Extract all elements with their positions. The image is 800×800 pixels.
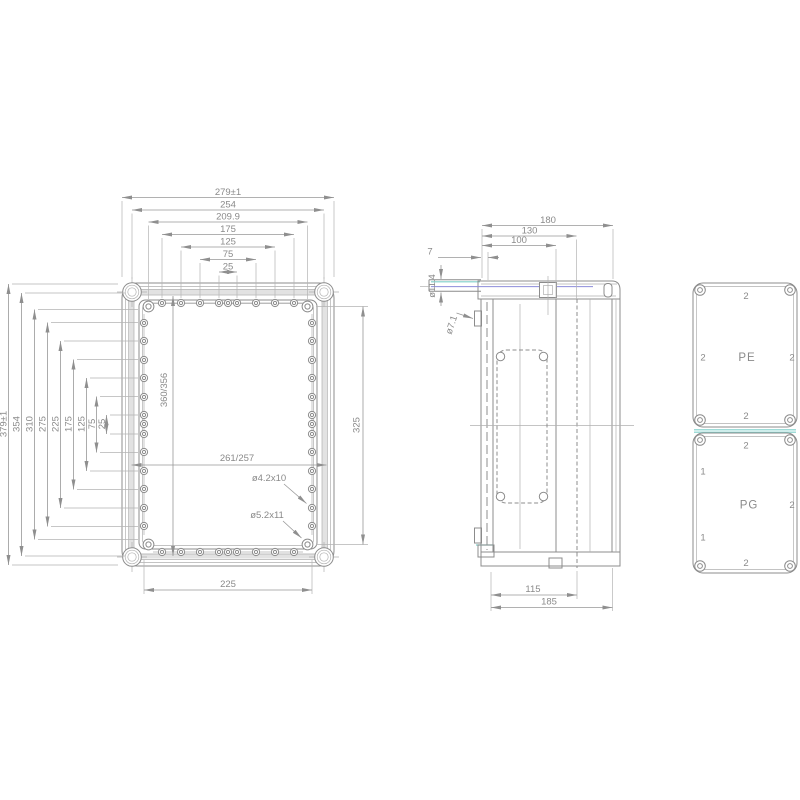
dim-overall-width: 279±1 [215,187,241,198]
dim-lid-screw-spacing-x: 209.9 [216,212,240,223]
panel-separator [694,430,796,432]
note-hole-diameter-small: ø4.2x10 [252,473,286,484]
pe-panel-title: PE [738,352,755,364]
pg-panel-title: PG [740,500,759,512]
pg-count-lower-left: 1 [700,533,705,544]
corner-screw [123,283,142,302]
pe-count-top: 2 [743,291,748,302]
dim-lid-screw-spacing-y: 310 [25,416,36,432]
dim-corner-screw-spacing-y: 354 [12,416,23,432]
dim-overall-height: 379±1 [0,411,10,437]
pe-panel: 2 2 PE 2 2 [693,283,797,427]
pe-count-left: 2 [700,353,705,364]
dim-bottom-115: 115 [525,584,540,595]
dim-hole-span-y-25: 25 [97,419,108,430]
front-view-top-dimensions: 279±1 254 209.9 175 125 75 25 [122,187,334,299]
mounting-window [497,350,547,503]
panel-screw [785,435,796,446]
corner-screw [315,283,334,302]
pg-count-right: 2 [789,500,794,511]
front-view: 279±1 254 209.9 175 125 75 25 379±1 354 … [0,187,368,594]
lid-screw-boss-bottom [475,528,482,543]
dim-hole-span-75: 75 [223,249,234,260]
dim-hole-span-y-275: 275 [38,416,49,432]
lid-screw-hole [143,301,154,312]
dim-depth-180: 180 [540,215,556,226]
dim-inner-height: 360/356 [159,373,170,407]
dim-hole-span-y-175: 175 [64,416,75,432]
front-view-body [117,277,339,572]
lid-screw-hole [143,539,154,550]
dim-corner-screw-spacing-x: 254 [220,200,236,211]
corner-screw [315,548,334,567]
mounting-holes [140,299,315,555]
enclosure-drawing: 279±1 254 209.9 175 125 75 25 379±1 354 … [0,0,800,800]
dim-hole-span-y-225: 225 [51,416,62,432]
pg-count-upper-left: 1 [700,467,705,478]
dim-inner-width: 261/257 [220,453,254,464]
dim-depth-100: 100 [511,235,527,246]
dim-lid-hole-diameter: ø7.1 [444,314,460,335]
pe-count-bottom: 2 [743,411,748,422]
dim-hole-span-25: 25 [223,262,234,273]
front-view-left-dimensions: 379±1 354 310 275 225 175 125 75 25 [0,284,138,565]
side-view: 180 130 100 7 ø11.4 ø7.1 115 185 [420,215,634,611]
dim-hole-span-y-125: 125 [77,416,88,432]
dim-hole-span-125: 125 [220,237,236,248]
lid-screw-hole [302,301,313,312]
lid-screw-hole [302,539,313,550]
dim-lid-screw-span-right: 325 [352,417,363,433]
lid-screw-boss-top [475,311,482,326]
panel-screw [785,415,796,426]
corner-screw [123,548,142,567]
panel-screw [785,561,796,572]
dim-bottom-185: 185 [541,597,557,608]
panel-screw [695,435,706,446]
dim-hole-span-175: 175 [220,224,236,235]
pg-count-top: 2 [743,441,748,452]
panel-screw [695,285,706,296]
note-hole-diameter-large: ø5.2x11 [250,510,284,521]
panel-screw [695,415,706,426]
pe-count-right: 2 [789,353,794,364]
panel-screw [695,561,706,572]
pg-count-bottom: 2 [743,558,748,569]
dim-pin-diameter: ø11.4 [427,274,438,298]
panel-screw [785,285,796,296]
lid-hinge-slot [604,284,612,298]
technical-drawing-canvas: 279±1 254 209.9 175 125 75 25 379±1 354 … [0,0,800,800]
base-wall-section [481,552,620,566]
dim-bottom-hole-span: 225 [220,579,236,590]
dim-offset-7: 7 [427,247,432,258]
pg-panel: 2 1 PG 2 1 2 [693,433,797,573]
